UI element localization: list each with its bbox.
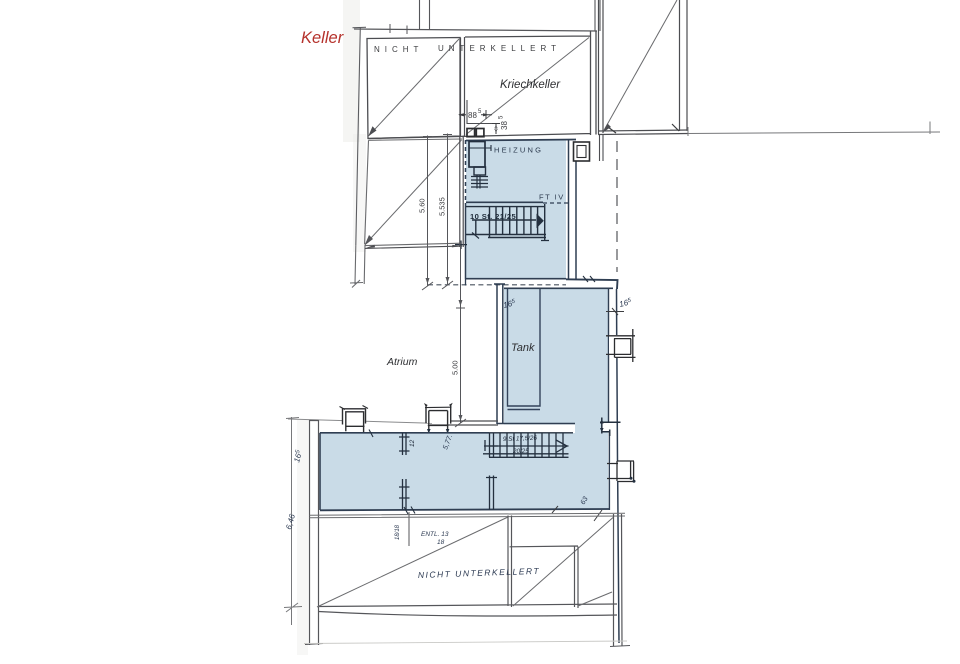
svg-text:18: 18 [437, 539, 445, 546]
svg-text:Keller: Keller [301, 29, 345, 47]
svg-text:UNTERKELLERT: UNTERKELLERT [438, 44, 561, 53]
svg-text:5.00: 5.00 [451, 360, 460, 375]
svg-text:20/25: 20/25 [512, 448, 529, 455]
svg-text:ENTL. 13: ENTL. 13 [421, 531, 449, 538]
svg-text:18/18: 18/18 [395, 524, 401, 540]
svg-text:FT IV: FT IV [539, 193, 565, 202]
svg-text:HEIZUNG: HEIZUNG [494, 146, 543, 155]
svg-text:88: 88 [468, 111, 477, 120]
svg-text:9 St 17,5/26: 9 St 17,5/26 [503, 435, 538, 443]
svg-text:Tank: Tank [511, 342, 535, 354]
svg-text:5.535: 5.535 [438, 197, 447, 216]
svg-text:NICHT: NICHT [374, 45, 423, 54]
svg-text:Kriechkeller: Kriechkeller [500, 79, 561, 91]
svg-text:38: 38 [500, 121, 509, 130]
svg-text:5.60: 5.60 [418, 198, 427, 213]
svg-text:12: 12 [409, 439, 416, 447]
svg-text:10 St. 21/25: 10 St. 21/25 [470, 212, 517, 221]
svg-text:Atrium: Atrium [386, 356, 418, 368]
